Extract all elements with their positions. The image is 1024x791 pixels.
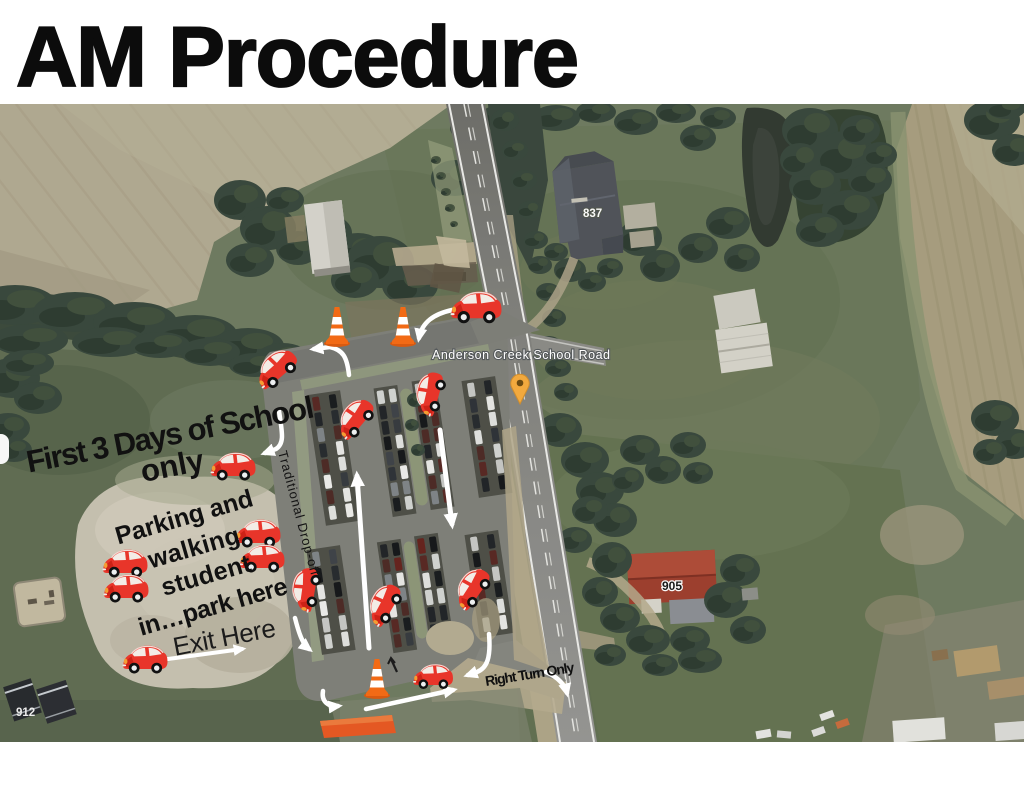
svg-text:Anderson Creek School Road: Anderson Creek School Road (432, 348, 610, 362)
